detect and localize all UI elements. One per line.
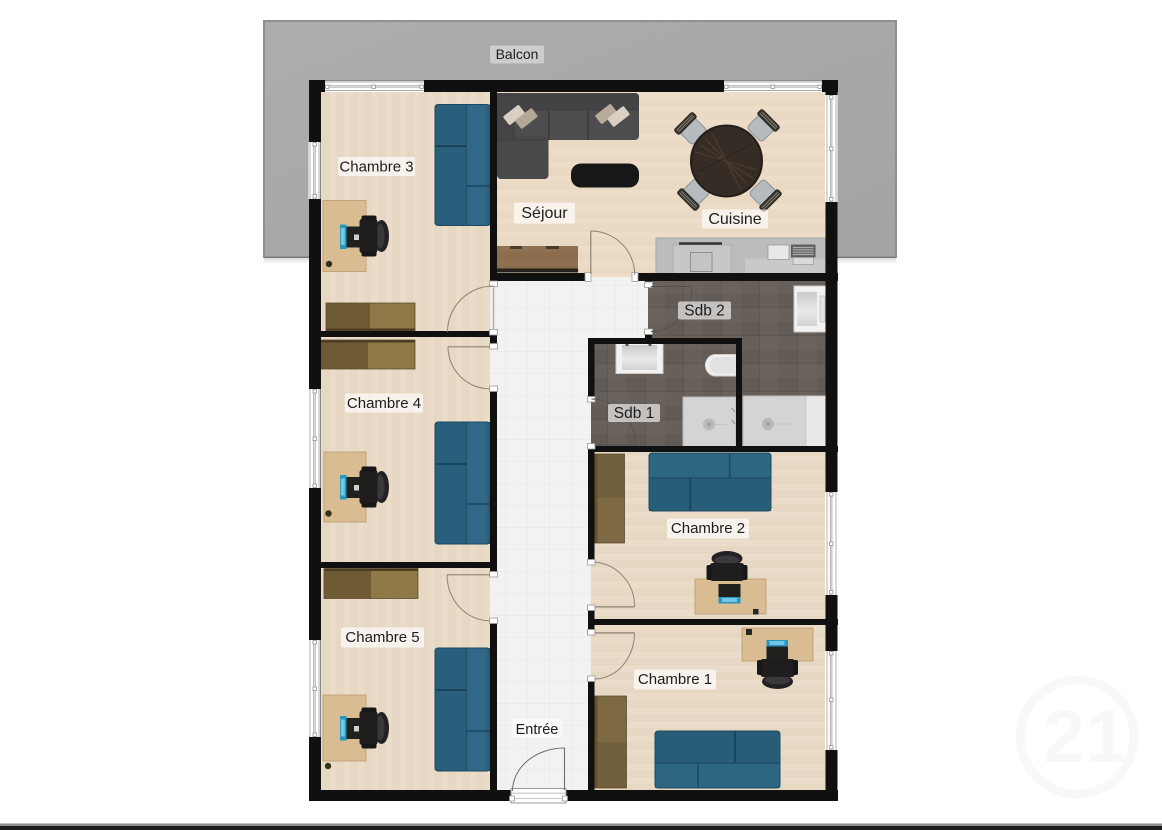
svg-text:Chambre 2: Chambre 2 xyxy=(671,520,745,537)
svg-text:Entrée: Entrée xyxy=(516,722,559,738)
svg-text:Sdb 2: Sdb 2 xyxy=(684,303,725,320)
svg-text:Chambre 5: Chambre 5 xyxy=(345,629,419,646)
svg-text:Séjour: Séjour xyxy=(521,205,568,222)
svg-text:Sdb 1: Sdb 1 xyxy=(614,405,655,422)
svg-text:Chambre 3: Chambre 3 xyxy=(339,159,413,176)
svg-text:1: 1 xyxy=(1085,695,1126,778)
svg-text:Chambre 1: Chambre 1 xyxy=(638,671,712,688)
svg-text:Balcon: Balcon xyxy=(496,46,539,62)
svg-text:Cuisine: Cuisine xyxy=(708,211,761,228)
svg-text:Chambre 4: Chambre 4 xyxy=(347,395,421,412)
svg-text:2: 2 xyxy=(1043,695,1084,778)
